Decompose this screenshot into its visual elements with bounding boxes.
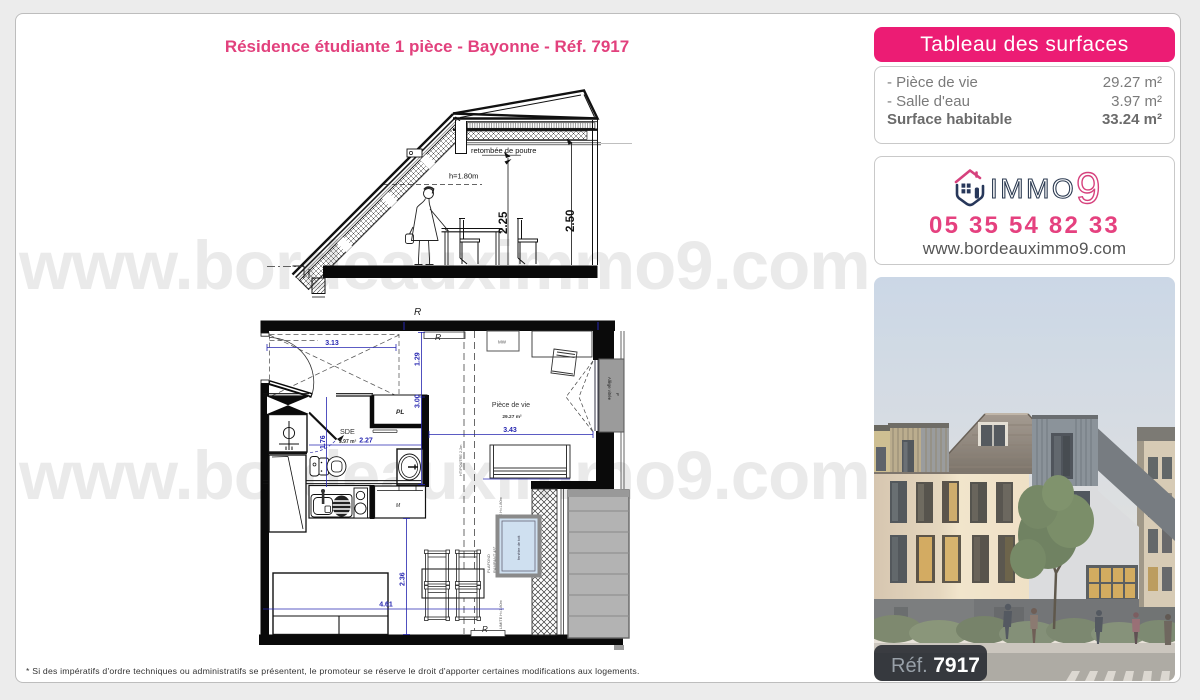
svg-text:MW: MW: [498, 340, 507, 345]
svg-text:F: F: [615, 393, 620, 396]
svg-text:fenêtre de toit: fenêtre de toit: [516, 535, 521, 560]
svg-text:HT/POUTRE 2.2m: HT/POUTRE 2.2m: [459, 445, 463, 476]
svg-text:3.00: 3.00: [415, 394, 422, 408]
svg-text:h=1.80m: h=1.80m: [449, 172, 478, 181]
svg-text:1.76: 1.76: [320, 435, 327, 449]
svg-text:SDE: SDE: [340, 427, 355, 436]
svg-text:2.50: 2.50: [565, 210, 577, 232]
svg-text:2.27: 2.27: [359, 438, 373, 445]
svg-text:IMMO: IMMO: [990, 173, 1076, 204]
svg-text:PLAFOND: PLAFOND: [486, 554, 491, 573]
svg-text:3.43: 3.43: [503, 427, 517, 434]
svg-text:2.36: 2.36: [400, 572, 407, 586]
svg-text:3.13: 3.13: [325, 340, 339, 347]
svg-text:4.61: 4.61: [379, 602, 393, 609]
svg-text:1.29: 1.29: [415, 352, 422, 366]
svg-text:LIMITE H=1.80m: LIMITE H=1.80m: [499, 600, 503, 629]
svg-text:2.25: 2.25: [498, 211, 510, 234]
svg-text:3.97 m²: 3.97 m²: [339, 439, 357, 445]
svg-text:9: 9: [1076, 165, 1100, 209]
svg-text:R: R: [435, 332, 441, 342]
svg-text:Allège vitrée: Allège vitrée: [607, 377, 612, 401]
svg-text:PL: PL: [396, 409, 404, 416]
svg-text:Pièce de vie: Pièce de vie: [492, 402, 530, 409]
svg-text:R: R: [482, 625, 488, 634]
svg-text:29.27 m²: 29.27 m²: [502, 414, 522, 420]
svg-text:R: R: [414, 307, 421, 318]
svg-text:retombée de poutre: retombée de poutre: [471, 146, 536, 155]
